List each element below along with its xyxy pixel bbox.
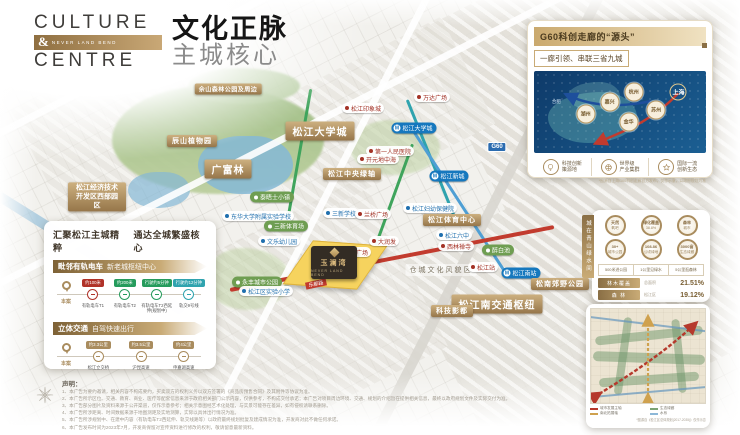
map-label-text: 醉白池 [492,246,510,255]
ecology-strip-cell: 500米进公园 [599,265,633,275]
poi-dot-icon [406,206,410,210]
poster-canvas: 佘山森林公园及周边辰山植物园松江大学城广富林松江经济技术开发区西部园区松江中央绿… [0,0,740,435]
bar [182,356,186,358]
diamond-icon [329,247,339,257]
transit-stop: 行驶约12分钟轨交9号线 [173,279,205,316]
legend-label: 水系 [660,411,667,416]
poi-dot-icon [441,244,445,248]
map-label-text: 松江妇幼保健院 [412,204,454,213]
map-label-text: 仓城文化风貌区 [410,265,473,275]
map-label-gold-md: 松江体育中心 [423,214,481,226]
map-label-gold-md: 辰山植物园 [167,135,217,147]
headline-cn: 文化正脉 主城核心 [172,15,288,70]
globe-icon [601,159,617,175]
brand-gold-band: & NEVER LAND BEND [34,35,162,50]
bar [187,294,191,296]
map-label-text: 松南郊野公园 [536,279,584,289]
bar [91,294,95,296]
map-label-road-red: 乐都路 [305,278,327,289]
banner-light-text: 新老城枢纽中心 [107,262,156,272]
map-label-text: 兰桥广场 [364,210,388,219]
g60-corridor-card: G60科创走廊的“源头” 一廊引领、串联三省九城 湖州嘉兴杭州金华苏州 上海 合… [527,20,713,178]
transit-stop-icon [183,289,194,300]
map-label-poi-red: 大润发 [369,236,399,246]
stop-label: 有轨电车T2西延伸(规划中) [141,303,173,314]
headline-line1: 文化正脉 [172,15,288,43]
brand-word-culture: CULTURE [34,13,162,34]
stat-line2: 38.8% [646,226,656,230]
map-label-station: M松江大学城 [391,123,436,134]
map-label-gold-md: 松江经济技术开发区西部园区 [68,182,126,211]
planning-map-card: 城市发展主轴生态绿廊南北拓展轴水系 *图源自《松江区总体规划(2017-2035… [586,304,710,428]
route-banner: 毗邻有轨电车新老城枢纽中心 [53,260,207,273]
map-label-text: 大润发 [378,237,396,246]
map-label-text: 松江中央绿轴 [328,169,376,179]
map-label-station: M松江南站 [501,268,540,279]
map-label-text: 松江南站 [512,269,536,278]
map-label-text: 松江经济技术开发区西部园区 [73,183,121,210]
origin-pin-icon [62,343,71,352]
poi-dot-icon [471,265,475,269]
transit-stop: 约3.5公里沪昆高速 [120,341,163,378]
map-label-text: 松江体育中心 [428,215,476,225]
g60-feature: 国际一流创新生态 [648,158,706,176]
compass-icon [36,386,54,404]
map-label-poi-green: 泰晤士小镇 [250,192,294,203]
ecology-stat-circle: 3000亩生态绿廊 [677,239,698,260]
poi-dot-icon [326,211,330,215]
ecology-row: 森 林松江区19.12% [598,290,704,300]
ecology-stat-circle: 森林城市 [677,215,698,236]
map-label-text: 松江印象城 [351,104,381,113]
disclaimer-text: 声明： 1、本广告为要约邀请，相关内容不构成要约，买卖双方的权利义务以双方签署的… [62,378,510,431]
metro-icon: M [393,125,400,132]
disclaimer-title: 声明： [62,378,510,388]
ecology-row-banner: 森 林 [598,290,640,300]
map-label-text: 辰山植物园 [172,136,212,146]
headline-line2: 主城核心 [172,43,288,69]
stat-line2: 公顷绿地 [644,250,658,254]
map-label-poi-blue: 文乐幼儿园 [258,236,300,246]
map-label-text: G60 [491,144,502,150]
distance-badge: 行驶约5分钟 [142,279,172,287]
map-label-text: 三新体育场 [274,222,304,231]
ecology-stat-circle: 108.86公顷绿地 [641,239,662,260]
route-timeline: 本案约100米有轨电车T1约200米有轨电车T2行驶约5分钟有轨电车T2西延伸(… [55,279,205,316]
ecology-strip-cell: 5公里逛森林 [668,265,703,275]
g60-city-node: 金华 [619,112,638,131]
transit-stop: 约200米有轨电车T2 [109,279,141,316]
project-logo: 玉澜湾 NEVER LAND BEND [311,246,357,279]
ecology-row-sub: 总面积 [644,280,656,286]
planning-map [590,308,706,404]
transit-stop-icon [119,289,130,300]
map-label-poi-red: 西林禅寺 [438,241,474,251]
transit-stop: 约4公里申嘉湖高速 [162,341,205,378]
distance-badge: 约4公里 [173,341,194,349]
ecology-rows: 林木覆盖总面积21.51%森 林松江区19.12% [598,278,704,300]
map-label-poi-red: 万达广场 [414,92,450,102]
g60-corridor-map: 湖州嘉兴杭州金华苏州 上海 合肥 [534,71,706,153]
poi-dot-icon [417,95,421,99]
transit-stop: 约100米有轨电车T1 [77,279,109,316]
transit-sections: 毗邻有轨电车新老城枢纽中心本案约100米有轨电车T1约200米有轨电车T2行驶约… [53,260,207,378]
poi-dot-icon [358,212,362,216]
poi-dot-icon [225,214,229,218]
legend-item: 南北拓展轴 [590,411,646,416]
poi-dot-icon [369,149,373,153]
map-label-poi-green: 三新体育场 [264,221,308,232]
stop-label: 沪昆高速 [132,365,149,370]
g60-footnote: *图源自上海G60科创走廊官方发布，仅作示意，以政府规划为准 [534,179,706,184]
planning-footnote: *图源自《松江区总体规划(2017-2035)》仅作示意 [590,417,706,422]
metro-icon: M [431,173,438,180]
map-label-text: 泰晤士小镇 [260,193,290,202]
ecology-strip-cell: 1公里见绿水 [633,265,668,275]
disclaimer-line: 5、本广告所涉规划中、在建中内容（有轨电车T2西延伸、轨交线路等）以政府最终规划… [62,416,510,423]
bulb-icon [543,159,559,175]
ecology-stat-circles: 天然氧吧绿化覆盖38.8%森林城市30+城市公园108.86公顷绿地3000亩生… [598,215,704,260]
legend-swatch [590,413,598,415]
map-label-poi-blue: 松江区实验小学 [239,286,293,296]
distance-badge: 约3.5公里 [129,341,154,349]
transit-stop-icon [136,351,147,362]
ecology-row-sub: 松江区 [644,292,656,298]
brand-logo: CULTURE & NEVER LAND BEND CENTRE [34,13,162,72]
stop-label: 申嘉湖高速 [173,365,194,370]
banner-strong-text: 立体交通 [58,323,88,334]
map-label-text: 松江六中 [445,231,469,240]
poi-dot-icon [236,280,240,284]
map-label-poi-blue: 松江六中 [436,230,472,240]
legend-swatch [650,408,658,410]
map-label-poi-blue: 三新学校 [323,208,359,218]
transit-title-right: 通达全城繁盛核心 [134,228,208,254]
metro-icon: M [503,270,510,277]
g60-features: 科技创新策源地世界级产业集群国际一流创新生态 [534,158,706,176]
feature-label: 科技创新策源地 [562,161,582,174]
map-label-poi-blue: 东华大学附属实验学校 [222,211,294,221]
map-label-text: 万达广场 [423,93,447,102]
distance-badge: 约3.3公里 [86,341,111,349]
disclaimer-line: 2、本广告所示区位、交通、教育、商业、医疗等配套信息来源于政府相关部门公示内容，… [62,395,510,402]
map-label-text: 三新学校 [332,209,356,218]
map-label-text: 松江大学城 [293,124,348,139]
map-label-poi-green: 醉白池 [482,245,514,256]
poi-dot-icon [345,106,349,110]
transit-card-title: 汇聚松江主城精粹 通达全城繁盛核心 [53,228,207,254]
poi-dot-icon [486,248,490,252]
brand-tagline: NEVER LAND BEND [52,40,117,45]
disclaimer-lines: 1、本广告为要约邀请，相关内容不构成要约，买卖双方的权利义务以双方签署的《商品房… [62,388,510,431]
map-label-area-text: 仓城文化风貌区 [406,264,477,276]
stop-label: 有轨电车T1 [82,303,104,308]
transit-card: 汇聚松江主城精粹 通达全城繁盛核心 毗邻有轨电车新老城枢纽中心本案约100米有轨… [44,221,216,369]
map-label-text: 松江站 [477,263,495,272]
ecology-row: 林木覆盖总面积21.51% [598,278,704,288]
map-label-text: 开元地中海 [366,155,396,164]
project-name: 玉澜湾 [321,258,348,268]
g60-card-subtitle: 一廊引领、串联三省九城 [534,50,629,67]
g60-city-node: 杭州 [624,83,643,102]
ampersand: & [38,34,49,50]
feature-label: 世界级产业集群 [620,161,640,174]
stat-line2: 城市公园 [608,250,622,254]
g60-city-node: 嘉兴 [600,93,619,112]
distance-badge: 约200米 [114,279,136,287]
map-label-text: 松江新城 [440,172,464,181]
bar [155,294,159,296]
g60-city-node: 湖州 [576,104,595,123]
legend-swatch [590,408,598,410]
banner-strong-text: 毗邻有轨电车 [58,261,103,272]
transit-stop-icon [151,289,162,300]
map-label-gold-sm: 佘山森林公园及周边 [195,84,262,95]
map-label-text: 广富林 [212,162,245,177]
shanghai-node: 上海 [670,84,687,101]
origin-label: 本案 [61,360,71,367]
map-label-gold-lg: 广富林 [205,160,252,179]
route-banner: 立体交通自驾快速出行 [53,322,207,335]
disclaimer-line: 1、本广告为要约邀请，相关内容不构成要约，买卖双方的权利义务以双方签署的《商品房… [62,388,510,395]
poi-dot-icon [261,239,265,243]
ecology-row-value: 19.12% [680,292,704,299]
map-label-poi-red: 松江站 [468,262,498,272]
bar [96,356,100,358]
hefei-label: 合肥 [552,99,561,105]
map-label-text: 乐都路 [308,279,324,289]
map-label-text: 松江区实验小学 [248,287,290,296]
planning-legend: 城市发展主轴生态绿廊南北拓展轴水系 [590,406,706,416]
map-label-text: 佘山森林公园及周边 [199,85,258,94]
project-subtitle: NEVER LAND BEND [311,269,357,277]
disclaimer-line: 3、本广告部分图片及资料来源于公开渠道，仅作示意参考；相关示意图经艺术化处理，与… [62,402,510,409]
disclaimer-line: 4、本广告所涉距离、时间数据来源于地图测距及实地测算，实际以具体出行情况为准。 [62,409,510,416]
ecology-stat-circle: 天然氧吧 [605,215,626,236]
bar [139,356,143,358]
brand-word-centre: CENTRE [34,51,162,72]
poi-dot-icon [360,157,364,161]
transit-stop: 行驶约5分钟有轨电车T2西延伸(规划中) [141,279,173,316]
disclaimer-line: 6、本广告发布时间为2023年7月，开发商保留对宣传资料进行修改的权利，敬请留意… [62,424,510,431]
ecology-stat-circle: 30+城市公园 [605,239,626,260]
origin-label: 本案 [61,298,71,305]
legend-swatch [650,413,658,415]
ecology-strip: 500米进公园1公里见绿水5公里逛森林 [598,264,704,276]
poi-dot-icon [268,224,272,228]
brand-header: CULTURE & NEVER LAND BEND CENTRE 文化正脉 主城… [34,13,288,72]
disclaimer-block: 声明： 1、本广告为要约邀请，相关内容不构成要约，买卖双方的权利义务以双方签署的… [36,378,576,431]
map-label-gold-lg: 松江大学城 [286,122,355,141]
ecology-stat-circle: 绿化覆盖38.8% [641,215,662,236]
g60-card-title: G60科创走廊的“源头” [534,27,706,46]
transit-stop-icon [87,289,98,300]
transit-title-left: 汇聚松江主城精粹 [53,228,127,254]
map-label-poi-red: 松江印象城 [342,103,384,113]
transit-stop-icon [93,351,104,362]
origin-pin-icon [62,281,71,290]
ecology-row-banner: 林木覆盖 [598,278,640,288]
poi-dot-icon [242,289,246,293]
axis-arrows [591,309,705,403]
map-label-poi-red: 开元地中海 [357,154,399,164]
ecology-card: 城在青山绿水间 天然氧吧绿化覆盖38.8%森林城市30+城市公园108.86公顷… [592,210,710,302]
map-label-text: 科技影都 [436,306,468,316]
stat-line2: 氧吧 [611,226,618,230]
transit-stop: 约3.3公里松江立交桥 [77,341,120,378]
ecology-row-value: 21.51% [680,280,704,287]
g60-feature: 世界级产业集群 [591,158,649,176]
g60-city-node: 苏州 [647,101,666,120]
map-label-text: 文乐幼儿园 [267,237,297,246]
distance-badge: 行驶约12分钟 [173,279,205,287]
stat-line2: 城市 [683,226,690,230]
bar [123,294,127,296]
banner-light-text: 自驾快速出行 [92,324,134,334]
legend-item: 水系 [650,411,706,416]
map-label-text: 东华大学附属实验学校 [231,212,291,221]
poi-dot-icon [372,239,376,243]
ecology-tab: 城在青山绿水间 [582,215,594,278]
stop-label: 轨交9号线 [179,303,199,308]
map-label-gold-md: 松江中央绿轴 [323,168,381,180]
poi-dot-icon [439,233,443,237]
map-label-text: 松江大学城 [402,124,432,133]
transit-stop-icon [178,351,189,362]
origin-marker: 本案 [55,279,77,316]
map-label-poi-red: 兰桥广场 [355,209,391,219]
stop-label: 有轨电车T2 [114,303,136,308]
poi-dot-icon [254,195,258,199]
g60-feature: 科技创新策源地 [534,158,591,176]
route-timeline: 本案约3.3公里松江立交桥约3.5公里沪昆高速约4公里申嘉湖高速 [55,341,205,378]
feature-label: 国际一流创新生态 [677,161,697,174]
map-label-gold-md: 科技影都 [431,305,473,317]
stat-line2: 生态绿廊 [680,250,694,254]
map-label-station: M松江新城 [429,171,468,182]
map-label-text: 西林禅寺 [447,242,471,251]
map-label-poi-blue: 松江妇幼保健院 [403,203,457,213]
map-label-gold-md: 松南郊野公园 [531,278,589,290]
map-label-shield: G60 [487,142,506,152]
origin-marker: 本案 [55,341,77,378]
legend-label: 南北拓展轴 [600,411,618,416]
distance-badge: 约100米 [82,279,104,287]
medal-icon [658,159,674,175]
stop-label: 松江立交桥 [88,365,109,370]
